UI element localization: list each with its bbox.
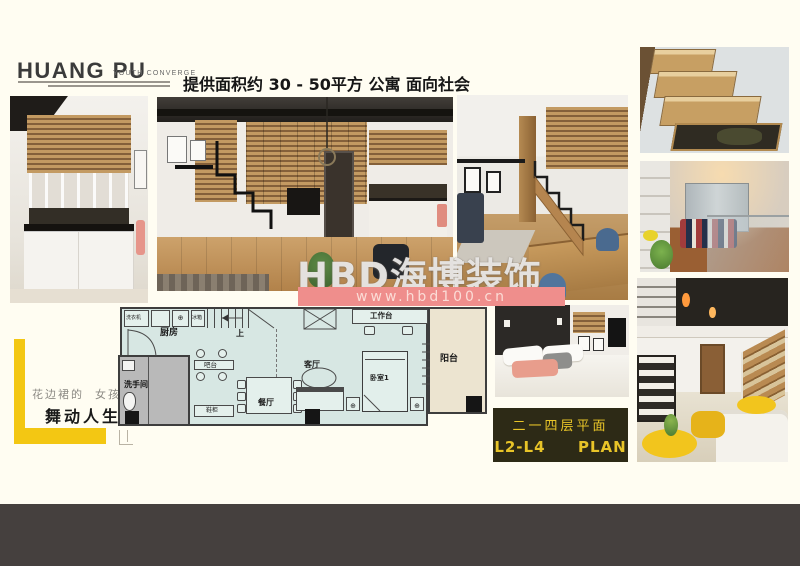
plan-up-label: 上 [236,330,244,338]
plan-badge: 二一四层平面 L2-L4 PLAN [493,408,628,462]
entry-door [700,344,724,394]
open-shelf [29,173,128,208]
plan-washer-label: 洗衣机 [126,316,141,321]
watermark-band: www.hbd100.cn [298,287,565,306]
burner-icon: ⊕ [178,314,184,322]
plan-shoe-label: 鞋柜 [206,408,218,414]
drawer-step [654,71,738,98]
pendant-light [682,293,690,308]
upper-slat-cabinet [27,115,132,173]
pink-pillow [512,359,558,379]
glass-railing [707,215,789,273]
plan-dimension-line [127,430,128,442]
plan-column [305,409,320,424]
plan-badge-title: 二一四层平面 [512,415,608,434]
plan-bed-headline [365,359,405,360]
plan-dimension-line [119,430,120,445]
watermark-url: www.hbd100.cn [356,289,507,305]
plan-kitchen-label: 厨房 [160,329,178,338]
mezzanine-shelf [637,278,676,326]
plan-bedroom-label: 卧室1 [370,375,389,382]
plan-bathroom-label: 洗手间 [124,381,148,389]
presentation-board: HUANG PU YOUTH CONVERGE 提供面积约 30 - 50平方 … [0,0,800,566]
plan-desk-chair [364,326,375,335]
plan-workbench-label: 工作台 [370,312,393,320]
slogan-line1: 花边裙的 女孩 [32,386,121,402]
plan-dimension-line [119,444,133,445]
clothes-in-drawer [717,128,762,145]
drawer-cabinet [637,355,676,421]
backsplash [29,208,128,225]
plan-column [466,396,482,412]
fine-print-line [48,85,170,87]
plan-bathroom-divider [148,357,149,424]
plan-sink [151,310,170,327]
plan-bath-sink [122,360,135,371]
tagline: 提供面积约 30 - 50平方 公寓 面向社会 [183,71,470,95]
plan-bar-stool [218,349,227,358]
plan-dining-chair [237,404,246,413]
yellow-living-photo [637,278,788,462]
accent-bar-horizontal [14,428,106,444]
desk-lamp-yellow [643,230,658,241]
plan-badge-subtitle: L2-L4 PLAN [494,438,626,456]
plan-toilet [123,392,136,411]
plan-bar-stool [196,349,205,358]
yellow-ottoman [691,411,724,439]
flower-vase [664,414,678,436]
plan-bar-stool [218,372,227,381]
plan-sofa [296,387,344,411]
plan-fridge-label: 冰箱 [192,316,202,321]
mezzanine-fascia [637,326,788,338]
wall-frame [134,150,147,189]
stair-drawers-photo [640,47,789,153]
plan-stair-landing [248,309,274,328]
plan-dining-chair [237,380,246,389]
floor-plan: 洗衣机 ⊕ 冰箱 上 厨房 洗手间 吧台 鞋柜 餐厅 [118,299,488,430]
bedroom-photo [495,305,629,397]
fixture-icon: ⊕ [350,402,356,410]
plan-nightstand: ⊕ [410,397,424,411]
plan-dining-label: 餐厅 [258,399,274,407]
plan-stairs-hatch [207,309,248,328]
base-cabinet [24,231,134,290]
plan-dining-table [246,377,292,414]
slat-band [573,312,605,332]
potted-plant [650,240,672,269]
drawer-step [660,96,763,126]
tv-screen [608,318,627,347]
hanging-towel [136,220,146,255]
pendant-light [709,307,715,318]
wall-frame [593,338,604,351]
white-sofa [716,410,788,462]
fine-print-line [18,81,170,83]
loft-bedroom-photo [640,161,789,272]
slogan-line2: 舞动人生 [45,403,121,427]
plan-desk-chair [402,326,413,335]
plan-bar-label: 吧台 [204,362,217,369]
accent-bar-vertical [14,339,25,428]
plan-nightstand: ⊕ [346,397,360,411]
plan-balcony-label: 阳台 [440,355,458,364]
plan-bar-stool [196,372,205,381]
plan-living-label: 客厅 [304,361,320,369]
yellow-table-small [737,396,776,414]
plan-dining-chair [237,392,246,401]
wall-tag [557,318,562,325]
footer-bar: BY HBD Design Co.Ltd [0,504,800,566]
fixture-icon: ⊕ [414,402,420,410]
wall-tag [504,320,509,327]
plan-column [125,411,139,424]
plan-stove: ⊕ [172,310,189,327]
kitchen-photo [10,96,148,303]
